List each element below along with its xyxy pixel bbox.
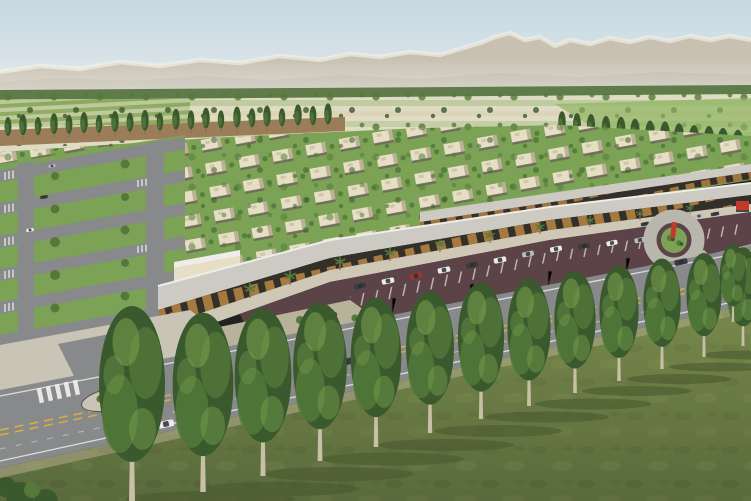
- rendering-canvas: [0, 0, 751, 501]
- aerial-rendering: [0, 0, 751, 501]
- connector-road: [18, 161, 34, 355]
- monument-sign: [736, 201, 749, 212]
